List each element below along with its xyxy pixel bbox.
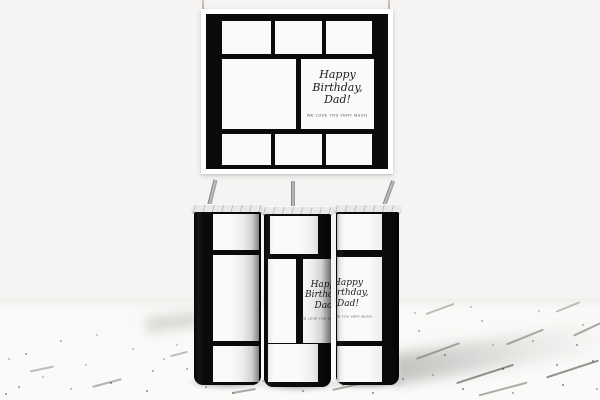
tumbler-body: Happy Birthday, Dad! WE LOVE YOU VERY MU… xyxy=(336,212,399,385)
product-mockup-scene: Happy Birthday, Dad! WE LOVE YOU VERY MU… xyxy=(0,0,600,400)
message-line-2: Birthday, xyxy=(336,288,369,299)
message-line-3: Dad! xyxy=(324,94,351,107)
wrap-panel xyxy=(268,259,296,343)
message-line-3: Dad! xyxy=(315,301,331,312)
photo-placeholder xyxy=(275,21,322,54)
wrap-message-panel: Happy Birthday, Dad! WE LOVE YOU VERY MU… xyxy=(337,257,382,341)
message-subtext: WE LOVE YOU VERY MUCH xyxy=(301,318,331,321)
photo-placeholder xyxy=(222,59,296,129)
tumbler-right: Happy Birthday, Dad! WE LOVE YOU VERY MU… xyxy=(336,179,399,386)
message-panel: Happy Birthday, Dad! WE LOVE YOU VERY MU… xyxy=(301,59,374,129)
metal-straw xyxy=(207,179,217,206)
photo-placeholder xyxy=(275,134,322,165)
photo-placeholder xyxy=(222,134,271,165)
message-line-1: Happy xyxy=(336,278,363,289)
wrap-panel xyxy=(213,255,259,341)
photo-placeholder xyxy=(326,134,372,165)
metal-straw xyxy=(382,180,395,207)
photo-placeholder xyxy=(326,21,372,54)
message-block: Happy Birthday, Dad! WE LOVE YOU VERY MU… xyxy=(303,259,331,343)
metal-straw xyxy=(291,181,295,208)
message-subtext: WE LOVE YOU VERY MUCH xyxy=(336,316,372,319)
floor-scratch xyxy=(479,382,528,397)
message-subtext: WE LOVE YOU VERY MUCH xyxy=(307,114,367,118)
tumbler-left xyxy=(194,179,261,386)
floor-scratch xyxy=(426,303,455,315)
message-line-1: Happy xyxy=(311,280,331,291)
wrap-panel xyxy=(213,214,259,250)
card-design-background: Happy Birthday, Dad! WE LOVE YOU VERY MU… xyxy=(206,14,388,169)
message-line-3: Dad! xyxy=(337,299,359,310)
design-template-card: Happy Birthday, Dad! WE LOVE YOU VERY MU… xyxy=(201,9,393,174)
floor-scratch xyxy=(546,360,599,379)
message-line-1: Happy xyxy=(319,69,355,82)
wrap-panel xyxy=(213,346,259,382)
tumbler-center: Happy Birthday, Dad! WE LOVE YOU VERY MU… xyxy=(264,181,331,388)
photo-placeholder xyxy=(222,21,271,54)
floor-speckles xyxy=(0,298,2,300)
wrap-panel xyxy=(337,214,382,250)
floor-scratch xyxy=(30,366,54,373)
wrap-panel xyxy=(268,344,318,382)
tumbler-body: Happy Birthday, Dad! WE LOVE YOU VERY MU… xyxy=(264,214,331,387)
message-line-2: Birthday, xyxy=(305,290,331,301)
message-block: Happy Birthday, Dad! WE LOVE YOU VERY MU… xyxy=(336,257,379,341)
wrap-panel xyxy=(337,346,382,382)
floor-scratch xyxy=(556,301,581,313)
wrap-panel xyxy=(270,216,318,254)
wrap-message-panel: Happy Birthday, Dad! WE LOVE YOU VERY MU… xyxy=(303,259,331,343)
floor-scratch xyxy=(170,351,188,357)
message-block: Happy Birthday, Dad! WE LOVE YOU VERY MU… xyxy=(301,59,374,129)
tumbler-body xyxy=(194,212,261,385)
floor-scratch xyxy=(92,378,121,388)
